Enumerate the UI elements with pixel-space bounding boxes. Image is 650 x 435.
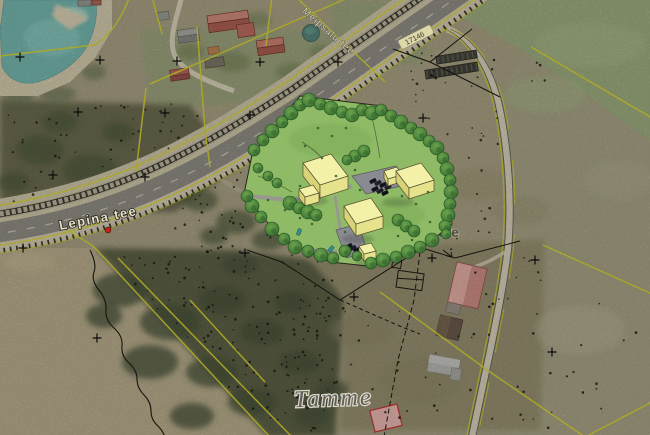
map-canvas[interactable]: ere Tamme	[0, 0, 650, 435]
settlement-label: Tamme	[294, 385, 373, 414]
aerial-map: ere Tamme	[0, 0, 650, 435]
road-marker-icon	[105, 227, 111, 233]
